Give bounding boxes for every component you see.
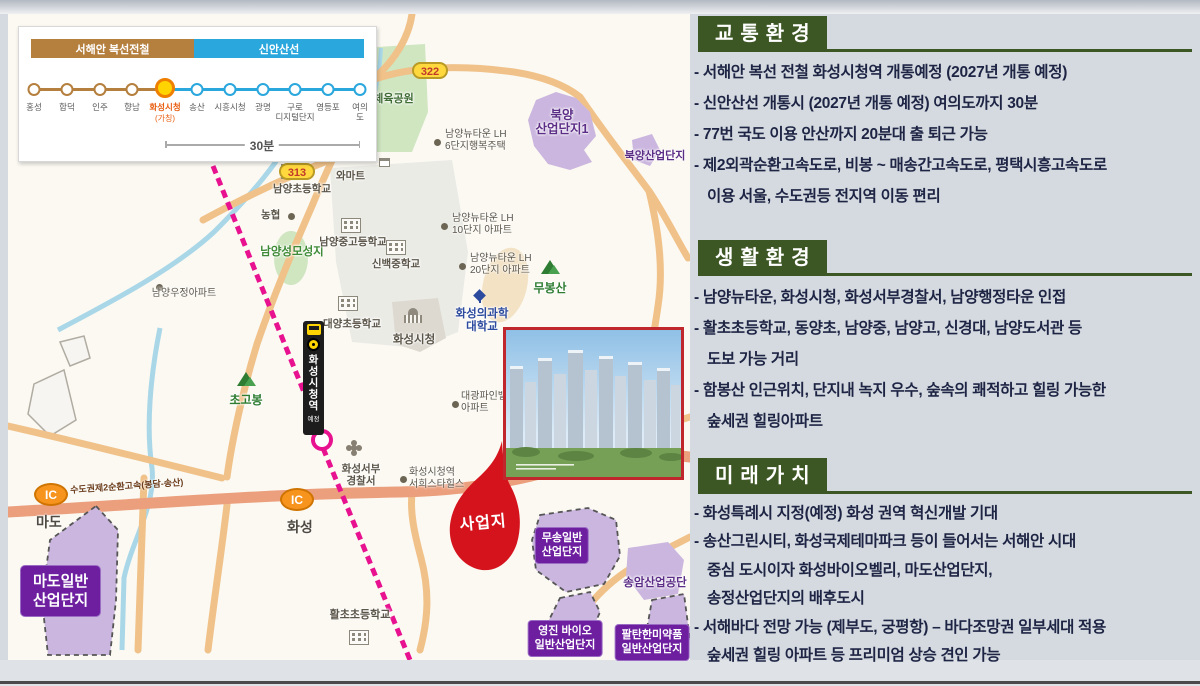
label-bukyang1: 북양 산업단지1 xyxy=(536,108,589,136)
rail-line-diagram: 서해안 복선전철 신안산선 홍성 합덕 인주 향남 화성시청 (가칭) 송산 시… xyxy=(18,26,377,162)
bullet-line: - 함봉산 인근위치, 단지내 녹지 우수, 숲속의 쾌적하고 힐링 가능한 xyxy=(694,375,1198,406)
rail-line-badge-icon xyxy=(307,338,320,351)
station-banner-hwaseong-cityhall: 화성시청역 예정 xyxy=(303,321,324,435)
label-hwalcho-elem: 활초초등학교 xyxy=(330,609,391,621)
label-lh10: 남양뉴타운 LH 10단지 아파트 xyxy=(452,213,514,236)
poi-dot xyxy=(400,476,407,483)
poi-dot xyxy=(434,139,441,146)
section-transport-body: - 서해안 복선 전철 화성시청역 개통예정 (2027년 개통 예정) - 신… xyxy=(694,57,1198,212)
poi-dot xyxy=(441,223,448,230)
station-marker xyxy=(257,83,270,96)
section-future-body: - 화성특례시 지정(예정) 화성 권역 혁신개발 기대 - 송산그린시티, 화… xyxy=(694,500,1198,670)
section-living-body: - 남양뉴타운, 화성시청, 화성서부경찰서, 남양행정타운 인접 - 활초초등… xyxy=(694,282,1198,437)
school-icon xyxy=(341,218,361,233)
line1-name: 서해안 복선전철 xyxy=(31,39,194,58)
station-name: 송산 xyxy=(189,103,205,113)
road-badge-322: 322 xyxy=(412,62,448,79)
bullet-line: - 송산그린시티, 화성국제테마파크 등이 들어서는 서해안 시대 xyxy=(694,528,1198,556)
label-box-youngjin: 영진 바이오 일반산업단지 xyxy=(528,620,603,657)
station-name: 여의도 xyxy=(352,103,368,122)
ic-name-mado: 마도 xyxy=(36,512,62,532)
bullet-line: 송정산업단지의 배후도시 xyxy=(694,585,1198,613)
duration-label: 30분 xyxy=(245,137,279,154)
section-title-transport: 교통환경 xyxy=(698,16,827,52)
bullet-line: 숲세권 힐링아파트 xyxy=(694,406,1198,437)
bullet-line: 도보 가능 거리 xyxy=(694,344,1198,375)
station-name: 향남 xyxy=(124,103,140,113)
poi-dot xyxy=(452,401,459,408)
label-namyang-mid-high: 남양중고등학교 xyxy=(319,236,387,248)
label-lh6: 남양뉴타운 LH 6단지행복주택 xyxy=(445,129,507,152)
label-bukyang2: 북양산업단지 xyxy=(625,150,686,162)
station-marker xyxy=(28,83,41,96)
page-canvas: 322 313 IC IC 마도 화성 수도권제2순환고속(봉담-송산) 화성시… xyxy=(0,0,1200,686)
bullet-line: - 남양뉴타운, 화성시청, 화성서부경찰서, 남양행정타운 인접 xyxy=(694,282,1198,313)
line2-name: 신안산선 xyxy=(194,39,364,58)
section-title-living: 생활환경 xyxy=(698,240,827,276)
bullet-line: - 화성특례시 지정(예정) 화성 권역 혁신개발 기대 xyxy=(694,500,1198,528)
bullet-line: 숲세권 힐링 아파트 등 프리미엄 상승 견인 가능 xyxy=(694,642,1198,670)
bullet-line: - 활초초등학교, 동양초, 남양중, 남양고, 신경대, 남양도서관 등 xyxy=(694,313,1198,344)
station-marker xyxy=(94,83,107,96)
station-name: 영등포 xyxy=(316,103,339,113)
project-site-label: 사업지 xyxy=(458,507,507,535)
label-lh20: 남양뉴타운 LH 20단지 아파트 xyxy=(470,253,532,276)
station-marker-highlight xyxy=(155,78,175,98)
poi-dot xyxy=(459,263,466,270)
station-marker xyxy=(354,83,367,96)
label-woojung-apt: 남양우정아파트 xyxy=(152,288,216,300)
train-icon xyxy=(307,324,321,335)
station-marker xyxy=(224,83,237,96)
mart-icon xyxy=(379,158,390,167)
label-shrine: 남양성모성지 xyxy=(260,246,323,258)
bullet-line: 중심 도시이자 화성바이오벨리, 마도산업단지, xyxy=(694,557,1198,585)
station-banner-sub: 예정 xyxy=(308,413,320,423)
ic-badge-mado: IC xyxy=(34,483,68,506)
bullet-line: 이용 서울, 수도권등 전지역 이동 편리 xyxy=(694,181,1198,212)
label-sinbaek-mid: 신백중학교 xyxy=(372,258,420,270)
school-icon xyxy=(349,630,369,645)
label-police: 화성서부 경찰서 xyxy=(342,463,381,487)
station-name: 홍성 xyxy=(26,103,42,113)
bullet-line: - 서해안 복선 전철 화성시청역 개통예정 (2027년 개통 예정) xyxy=(694,57,1198,88)
school-icon xyxy=(386,240,406,255)
label-mubongsan: 무봉산 xyxy=(533,282,566,294)
section-title-future: 미래가치 xyxy=(698,458,827,494)
station-marker xyxy=(289,83,302,96)
label-box-musong: 무송일반 산업단지 xyxy=(535,527,589,564)
label-city-hall: 화성시청 xyxy=(393,334,435,346)
station-marker xyxy=(61,83,74,96)
station-name: 광명 xyxy=(255,103,271,113)
bullet-line: - 77번 국도 이용 안산까지 20분대 출 퇴근 가능 xyxy=(694,119,1198,150)
station-name-highlight: 화성시청 xyxy=(149,103,180,113)
bullet-line: - 신안산선 개통시 (2027년 개통 예정) 여의도까지 30분 xyxy=(694,88,1198,119)
police-icon xyxy=(351,445,357,451)
apartment-complex-rendering xyxy=(503,327,684,480)
mountain-icon xyxy=(541,260,559,274)
label-chogobong: 초고봉 xyxy=(229,394,262,406)
station-name-sub: (가칭) xyxy=(155,113,175,124)
label-university: 화성의과학 대학교 xyxy=(456,308,509,334)
road-badge-313: 313 xyxy=(279,163,315,180)
bullet-line: - 서해바다 전망 가능 (제부도, 궁평항) – 바다조망권 일부세대 적용 xyxy=(694,614,1198,642)
label-mart: 와마트 xyxy=(336,170,365,182)
ic-name-hwaseong: 화성 xyxy=(287,517,313,537)
poi-dot xyxy=(288,213,295,220)
ic-badge-hwaseong: IC xyxy=(280,488,314,511)
station-marker xyxy=(126,83,139,96)
label-daeyang-elem: 대양초등학교 xyxy=(323,318,381,330)
label-namyang-elem: 남양초등학교 xyxy=(273,183,331,195)
rail-line-bar: 서해안 복선전철 신안산선 xyxy=(31,39,364,58)
school-icon xyxy=(338,296,358,311)
bullet-line: - 제2외곽순환고속도로, 비봉 ~ 매송간고속도로, 평택시흥고속도로 xyxy=(694,150,1198,181)
city-hall-icon xyxy=(404,308,422,323)
label-songam: 송암산업공단 xyxy=(623,577,686,589)
label-box-paltan: 팔탄한미약품 일반산업단지 xyxy=(615,624,690,661)
station-banner-title: 화성시청역 xyxy=(306,354,321,412)
university-icon xyxy=(473,291,487,303)
station-name: 구로 디지털단지 xyxy=(275,103,314,122)
station-name: 합덕 xyxy=(59,103,75,113)
label-nonghyup: 농협 xyxy=(261,209,280,221)
station-marker xyxy=(191,83,204,96)
station-marker xyxy=(322,83,335,96)
mountain-icon xyxy=(237,372,255,386)
station-name: 시흥시청 xyxy=(214,103,245,113)
label-box-mado: 마도일반 산업단지 xyxy=(20,565,101,617)
label-seohee-apt: 화성시청역 서희스타힐스 xyxy=(409,467,464,490)
station-name: 인주 xyxy=(92,103,108,113)
